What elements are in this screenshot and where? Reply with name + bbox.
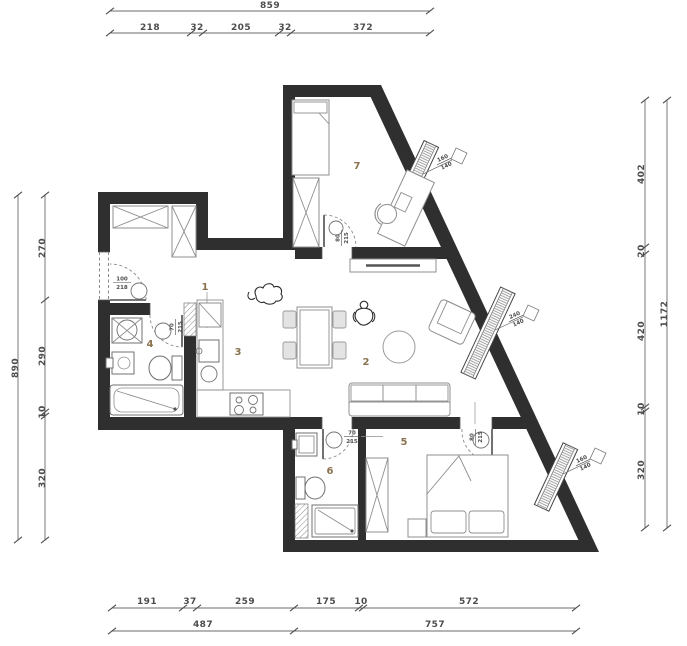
wall-room7-top xyxy=(283,85,377,97)
wall-living-room7-a xyxy=(295,247,322,259)
bedroom-wardrobe xyxy=(366,458,388,532)
dim-seg: 270 xyxy=(38,238,48,258)
svg-text:80: 80 xyxy=(470,433,476,441)
tv-sideboard xyxy=(350,259,436,272)
room-label-2: 2 xyxy=(363,357,370,368)
dim-seg: 372 xyxy=(353,23,373,33)
wall-bedroom-top-a xyxy=(352,417,460,429)
hall-wardrobe-wide xyxy=(113,206,168,228)
chair xyxy=(283,342,296,359)
office-chair xyxy=(375,204,397,225)
door-bedroom: 80 215 xyxy=(462,402,492,461)
kitchen-counter-left xyxy=(196,300,223,390)
dim-seg: 10 xyxy=(637,402,647,415)
dim-total: 757 xyxy=(425,620,445,630)
dining-table xyxy=(283,307,346,368)
kitchen-bowl xyxy=(201,366,217,382)
washing-machine xyxy=(112,318,142,343)
cat-figure xyxy=(248,284,282,304)
room-label-5: 5 xyxy=(401,437,408,448)
wall-left-upper xyxy=(98,192,110,252)
wc-toilet xyxy=(296,477,325,499)
door-wc: 70 215 xyxy=(323,429,383,459)
chair xyxy=(333,342,346,359)
double-bed xyxy=(427,455,508,537)
door-entry-label: 100 218 xyxy=(113,277,131,292)
room-label-4: 4 xyxy=(147,339,154,350)
svg-text:215: 215 xyxy=(346,439,358,445)
dim-seg: 20 xyxy=(637,244,647,257)
chair xyxy=(333,311,346,328)
window-room7-label: 160 140 xyxy=(434,153,455,173)
dim-seg: 218 xyxy=(140,23,160,33)
bathtub xyxy=(110,385,183,415)
walls xyxy=(98,85,599,552)
kitchen-counter-bottom xyxy=(197,390,290,417)
window-mark xyxy=(590,448,606,464)
dim-seg: 191 xyxy=(137,597,157,607)
wall-bedroom-top-b xyxy=(492,417,532,429)
floor-plan-page: 859 218 32 205 32 372 890 270 290 10 320… xyxy=(0,0,687,646)
dim-total: 487 xyxy=(193,620,213,630)
partition-hatched-kitchen xyxy=(184,303,196,336)
dim-seg: 10 xyxy=(354,597,367,607)
dim-seg: 320 xyxy=(38,468,48,488)
room-label-1: 1 xyxy=(202,282,209,293)
chair xyxy=(283,311,296,328)
wall-hall-top xyxy=(98,192,208,204)
door-bathroom-label: 70 215 xyxy=(170,319,185,335)
svg-text:70: 70 xyxy=(170,323,176,331)
dimensions-right: 402 20 420 10 320 1172 xyxy=(637,97,671,531)
wall-bath-kitchen xyxy=(184,336,196,417)
round-rug xyxy=(383,331,415,363)
dim-seg: 32 xyxy=(190,23,203,33)
svg-text:218: 218 xyxy=(116,285,128,291)
dim-seg: 10 xyxy=(38,405,48,418)
wall-wc-left xyxy=(283,417,295,546)
svg-text:215: 215 xyxy=(178,321,184,333)
window-mark xyxy=(451,148,467,164)
wall-wc-bedroom xyxy=(358,417,366,540)
pillow xyxy=(431,511,466,533)
door-entry: 100 218 xyxy=(110,264,147,300)
single-bed xyxy=(292,100,329,175)
window-mark xyxy=(523,305,539,321)
dim-seg: 420 xyxy=(637,321,647,341)
floor-plan-drawing: 859 218 32 205 32 372 890 270 290 10 320… xyxy=(0,0,687,646)
wc-sink xyxy=(292,433,317,456)
dim-total-right: 1172 xyxy=(660,301,670,328)
room7-wardrobe xyxy=(293,178,319,247)
dim-seg: 32 xyxy=(278,23,291,33)
wall-hall-room7 xyxy=(196,238,295,250)
wall-bottom xyxy=(283,540,590,552)
wall-kitchen-bottom xyxy=(98,417,295,430)
dimensions-bottom: 191 37 259 175 10 572 487 757 xyxy=(108,597,580,634)
dim-seg: 572 xyxy=(459,597,479,607)
person-figure xyxy=(353,301,375,325)
sofa xyxy=(349,383,450,416)
dim-seg: 175 xyxy=(316,597,336,607)
svg-text:100: 100 xyxy=(116,277,128,283)
dim-total-top: 859 xyxy=(260,1,280,11)
dim-seg: 259 xyxy=(235,597,255,607)
partition-hatched-shower xyxy=(295,504,308,538)
wall-wc-top-a xyxy=(295,417,322,429)
dim-total-left: 890 xyxy=(11,358,21,378)
door-wc-label: 70 215 xyxy=(344,431,360,446)
room-label-7: 7 xyxy=(354,161,361,172)
svg-text:215: 215 xyxy=(478,431,484,443)
wall-bath-top xyxy=(98,303,150,315)
dim-seg: 37 xyxy=(183,597,196,607)
room-label-6: 6 xyxy=(327,466,334,477)
dimensions-top: 859 218 32 205 32 372 xyxy=(106,1,434,36)
dim-seg: 205 xyxy=(231,23,251,33)
stove xyxy=(230,393,263,415)
dimensions-left: 890 270 290 10 320 xyxy=(11,192,49,543)
bathroom-toilet xyxy=(149,356,182,380)
dim-seg: 290 xyxy=(38,346,48,366)
svg-text:70: 70 xyxy=(348,431,356,437)
hall-wardrobe-tall xyxy=(172,206,196,257)
bathroom-sink xyxy=(106,352,134,374)
svg-text:80: 80 xyxy=(336,234,342,242)
pillow xyxy=(469,511,504,533)
dim-seg: 402 xyxy=(637,164,647,184)
dim-seg: 320 xyxy=(637,460,647,480)
svg-text:215: 215 xyxy=(344,232,350,244)
nightstand xyxy=(408,519,426,537)
door-room7: 80 215 xyxy=(324,215,356,247)
room-label-3: 3 xyxy=(235,347,242,358)
shower xyxy=(312,505,358,537)
wall-living-room7-b xyxy=(352,247,449,259)
